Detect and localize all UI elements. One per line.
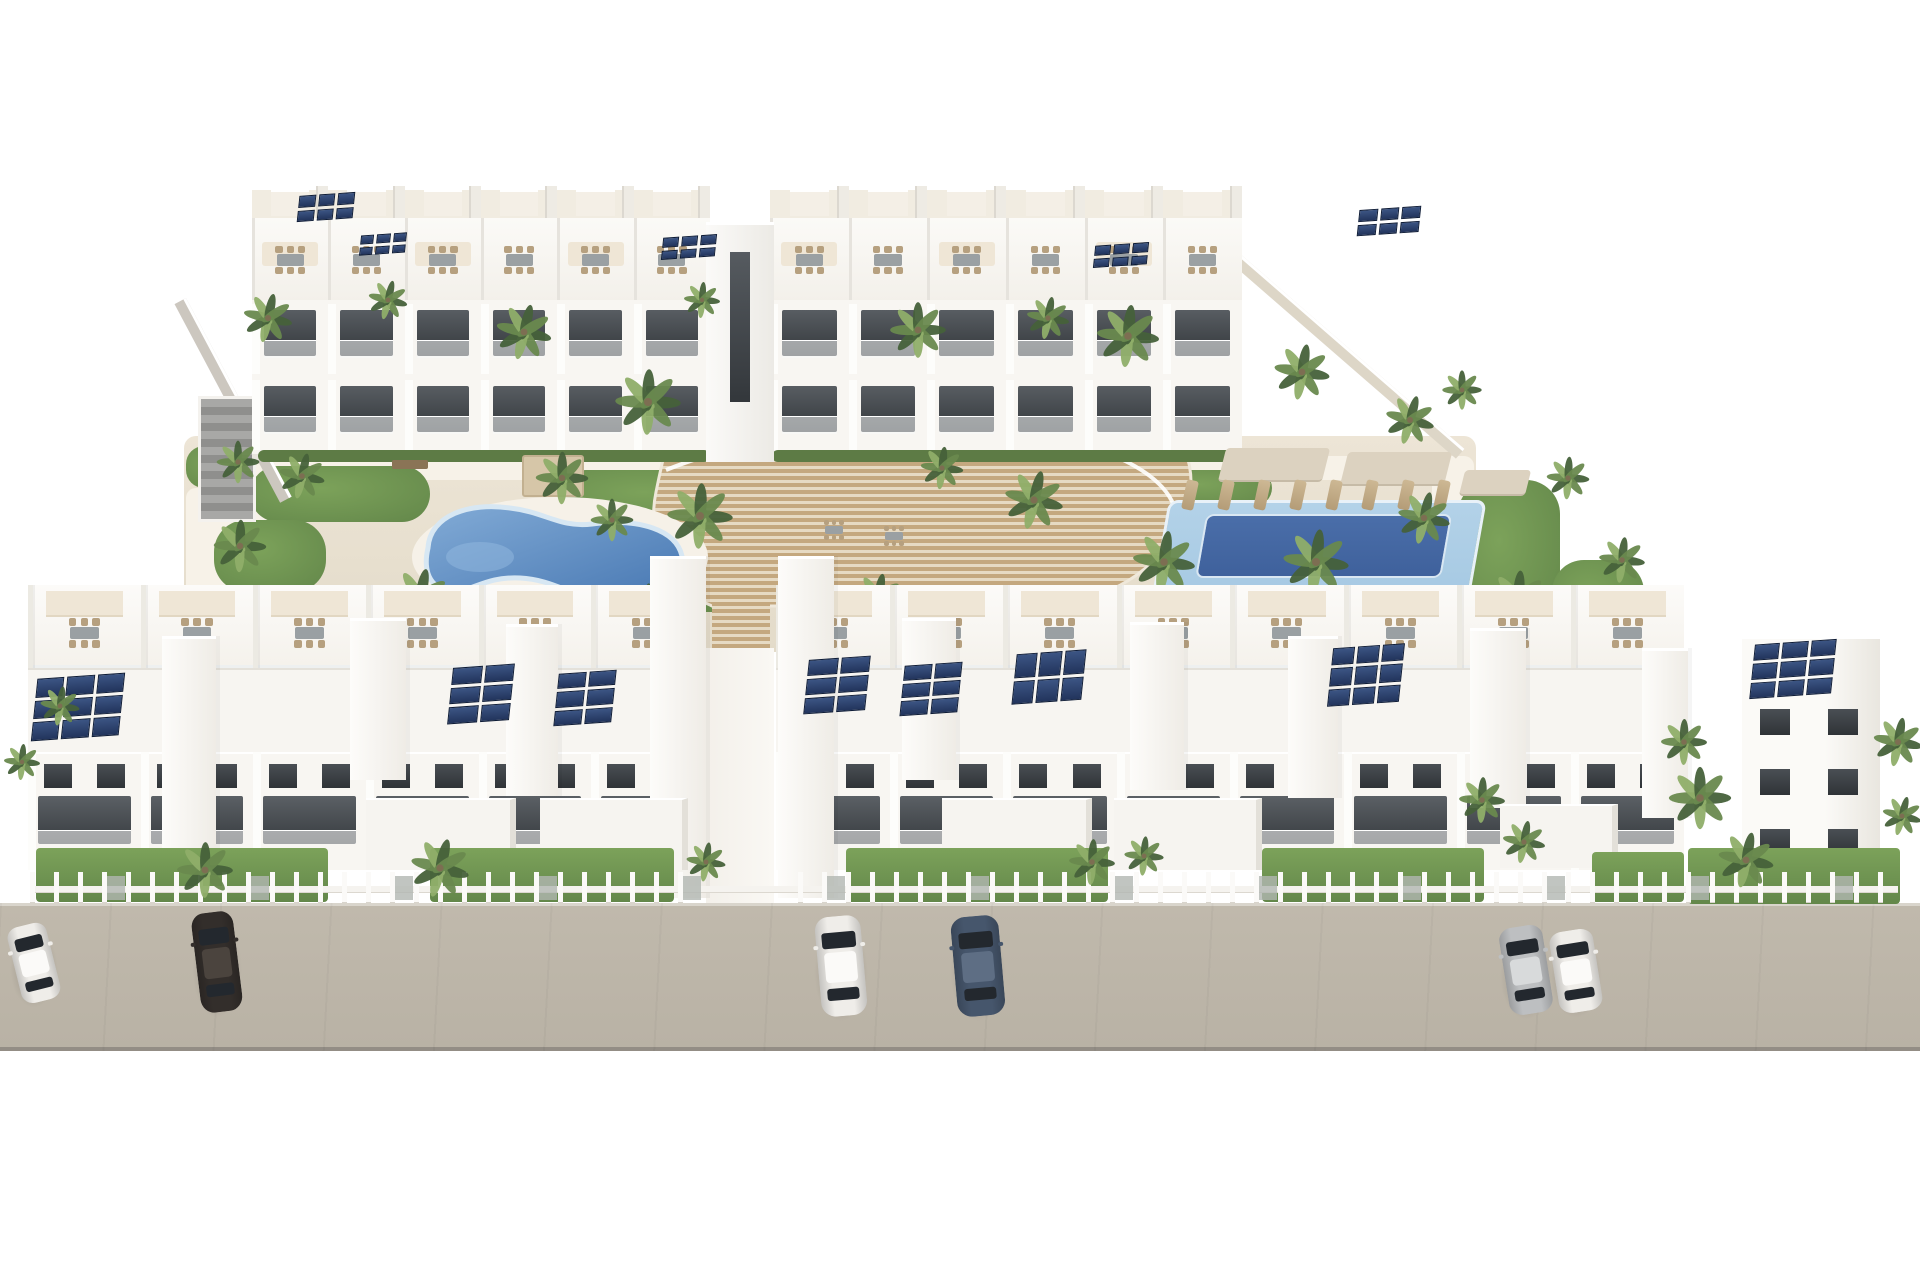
terrace-chair — [806, 246, 813, 253]
solar-panel — [584, 707, 613, 724]
fence-post — [1494, 872, 1499, 902]
solar-panel — [700, 234, 717, 245]
solar-panel — [96, 673, 125, 694]
stair-core-tower — [778, 556, 834, 898]
solar-panel — [680, 248, 697, 259]
fence-glass-panel — [1259, 876, 1277, 900]
roof-chimney — [622, 186, 634, 220]
solar-panel — [1381, 643, 1405, 662]
fence-post — [1182, 872, 1187, 902]
terrace-chair — [668, 267, 675, 274]
terrace-chair — [841, 640, 849, 648]
stair-core-tower — [162, 636, 216, 848]
terrace-dining-set — [407, 242, 479, 277]
fence-post — [366, 872, 371, 902]
palm-trunk — [235, 459, 240, 464]
fence-post — [318, 872, 323, 902]
terrace-chair — [306, 618, 314, 626]
terrace-chair — [193, 618, 201, 626]
terrace-chair — [657, 267, 664, 274]
terrace-chair — [1068, 618, 1076, 626]
architectural-rendering — [0, 0, 1920, 1280]
solar-panel-array — [1749, 639, 1837, 699]
terrace-chair — [952, 246, 959, 253]
terrace-parapet — [591, 585, 596, 668]
terrace-chair — [899, 541, 904, 546]
solar-panel — [393, 232, 407, 242]
terrace-chair — [1396, 618, 1404, 626]
terrace-chair — [899, 526, 904, 531]
terrace-divider — [328, 218, 331, 304]
terrace-dining-set — [271, 614, 348, 651]
palm-tree — [530, 446, 594, 510]
solar-panel — [1094, 245, 1111, 256]
terrace-chair — [884, 267, 891, 274]
solar-panel — [901, 682, 930, 699]
palm-trunk — [20, 760, 24, 764]
terrace-chair — [581, 267, 588, 274]
fence-post — [1518, 872, 1523, 902]
terrace-table — [506, 254, 533, 265]
solar-panel — [1113, 243, 1130, 254]
terrace-canopy — [1362, 591, 1440, 617]
solar-panel-array — [359, 232, 407, 255]
balcony-railing — [38, 830, 131, 844]
fence-post — [1038, 872, 1043, 902]
terrace-chair — [430, 640, 438, 648]
roof-box — [1104, 190, 1143, 216]
terrace-chair — [318, 618, 326, 626]
solar-panel — [451, 666, 482, 685]
palm-trunk — [1407, 417, 1413, 423]
palm-trunk — [1681, 739, 1687, 745]
facade-window — [607, 764, 635, 788]
solar-panel-array — [447, 664, 515, 725]
terrace-chair — [318, 640, 326, 648]
palm-tree — [1392, 486, 1456, 550]
fence-glass-panel — [1691, 876, 1709, 900]
solar-panel — [1400, 220, 1420, 233]
terrace-table — [1386, 627, 1415, 639]
fence-post — [870, 872, 875, 902]
palm-tree — [608, 362, 688, 442]
solar-panel — [1377, 684, 1401, 703]
terrace-chair — [1199, 246, 1206, 253]
terrace-chair — [92, 640, 100, 648]
fence-glass-panel — [107, 876, 125, 900]
facade-window — [1413, 764, 1441, 788]
terrace-chair — [817, 246, 824, 253]
solar-panel — [1782, 641, 1809, 659]
terrace-chair — [1132, 267, 1139, 274]
fence-post — [270, 872, 275, 902]
fence-post — [150, 872, 155, 902]
roof-box — [1183, 190, 1222, 216]
terrace-chair — [419, 618, 427, 626]
terrace-chair — [1044, 618, 1052, 626]
roof-chimney — [393, 186, 405, 220]
solar-panel — [557, 672, 586, 689]
terrace-chair — [1109, 267, 1116, 274]
terrace-chair — [603, 246, 610, 253]
facade-window — [1246, 764, 1274, 788]
terrace-chair — [428, 246, 435, 253]
terrace-chair — [592, 267, 599, 274]
facade-window — [1073, 764, 1101, 788]
solar-panel-array — [803, 656, 871, 715]
terrace-chair — [1408, 640, 1416, 648]
terrace-chair — [1210, 267, 1217, 274]
terrace-chair — [1635, 618, 1643, 626]
car-roof — [201, 946, 233, 979]
facade-window — [44, 764, 72, 788]
facade-pier — [1006, 380, 1014, 450]
facade-pier — [849, 380, 857, 450]
palm-trunk — [559, 475, 565, 481]
roof-chimney — [698, 186, 710, 220]
balcony-railing — [417, 340, 469, 358]
terrace-divider — [1085, 218, 1088, 304]
terrace-chair — [504, 246, 511, 253]
terrace-chair — [69, 618, 77, 626]
facade-pier — [481, 380, 489, 450]
solar-panel — [553, 709, 582, 726]
stair-core-tower — [506, 624, 558, 796]
terrace-chair — [896, 246, 903, 253]
solar-panel — [1810, 639, 1837, 657]
car-mirror — [1543, 947, 1549, 952]
solar-panel — [661, 249, 678, 260]
balcony-railing — [782, 416, 837, 434]
solar-panel-array — [1327, 643, 1405, 707]
roof-box — [1026, 190, 1065, 216]
palm-tree — [1064, 834, 1120, 890]
terrace-chair — [439, 246, 446, 253]
roof-chimney — [1151, 186, 1163, 220]
terrace-chair — [1510, 618, 1518, 626]
terrace-table — [874, 254, 901, 265]
roof-chimney — [837, 186, 849, 220]
palm-trunk — [939, 465, 944, 470]
fence-post — [1302, 872, 1307, 902]
fence-post — [510, 872, 515, 902]
facade-window — [1527, 764, 1555, 788]
terrace-divider — [634, 218, 637, 304]
facade-window — [1828, 769, 1858, 795]
terrace-chair — [1188, 267, 1195, 274]
terrace-chair — [1120, 267, 1127, 274]
facade-window — [1360, 764, 1388, 788]
terrace-chair — [1068, 640, 1076, 648]
car-mirror — [1498, 954, 1504, 959]
facade-window — [1828, 709, 1858, 735]
terrace-canopy — [497, 591, 574, 617]
terrace-chair — [287, 267, 294, 274]
entrance-tower-glass — [730, 252, 750, 402]
terrace-parapet — [1457, 585, 1462, 668]
facade-window — [846, 764, 874, 788]
terrace-chair — [603, 267, 610, 274]
terrace-chair — [884, 526, 889, 531]
terrace-canopy — [271, 591, 348, 617]
terrace-chair — [873, 246, 880, 253]
solar-panel — [1329, 667, 1353, 686]
terrace-dining-set — [852, 242, 924, 277]
fence-post — [1782, 872, 1787, 902]
fence-post — [294, 872, 299, 902]
facade-pier — [1163, 380, 1171, 450]
solar-panel-array — [1011, 649, 1086, 704]
terrace-dining-set — [1022, 614, 1099, 651]
terrace-divider — [1163, 218, 1166, 304]
roof-box — [500, 190, 538, 216]
terrace-table — [885, 532, 904, 540]
balcony-railing — [1354, 830, 1448, 844]
fence-post — [1230, 872, 1235, 902]
terrace-table — [277, 254, 304, 265]
terrace-table — [1613, 627, 1642, 639]
terrace-chair — [1522, 618, 1530, 626]
roof-box — [576, 190, 614, 216]
terrace-dining-set — [483, 242, 555, 277]
solar-panel — [1379, 664, 1403, 683]
terrace-chair — [1612, 640, 1620, 648]
fence-glass-panel — [827, 876, 845, 900]
fence-glass-panel — [539, 876, 557, 900]
solar-panel — [1777, 679, 1804, 697]
palm-tree — [916, 442, 968, 494]
terrace-canopy — [384, 591, 461, 617]
terrace-chair — [974, 267, 981, 274]
terrace-chair — [205, 618, 213, 626]
solar-panel — [336, 207, 354, 220]
terrace-chair — [419, 640, 427, 648]
pool-shallow-shelf — [446, 542, 514, 572]
terrace-table — [353, 254, 380, 265]
palm-tree — [171, 836, 239, 904]
terrace-chair — [592, 246, 599, 253]
solar-panel — [94, 694, 123, 715]
terrace-table — [408, 627, 437, 639]
terrace-table — [1032, 254, 1059, 265]
fence-post — [654, 872, 659, 902]
fence-post — [630, 872, 635, 902]
terrace-chair — [81, 640, 89, 648]
terrace-chair — [1042, 246, 1049, 253]
terrace-dining-set — [1009, 242, 1081, 277]
solar-panel — [836, 694, 867, 712]
fence-post — [918, 872, 923, 902]
roof-box — [653, 190, 691, 216]
terrace-dining-set — [1589, 614, 1666, 651]
fence-post — [1206, 872, 1211, 902]
stair-core-tower — [1288, 636, 1338, 798]
palm-tree — [1438, 366, 1486, 414]
roof-box — [868, 190, 907, 216]
terrace-chair — [873, 267, 880, 274]
balcony-railing — [1097, 416, 1152, 434]
fence-post — [1278, 872, 1283, 902]
terrace-canopy — [1475, 591, 1553, 617]
terrace-chair — [516, 246, 523, 253]
balcony-railing — [569, 340, 621, 358]
hedge-strip — [772, 450, 1242, 462]
shade-sail — [1459, 470, 1531, 496]
fence-post — [342, 872, 347, 902]
terrace-chair — [832, 520, 837, 525]
terrace-chair — [896, 267, 903, 274]
terrace-canopy — [1589, 591, 1667, 617]
palm-tree — [364, 276, 412, 324]
fence-post — [1446, 872, 1451, 902]
palm-tree — [1268, 338, 1336, 406]
palm-trunk — [1045, 315, 1050, 320]
facade-pier — [927, 380, 935, 450]
palm-tree — [1542, 452, 1594, 504]
palm-tree — [680, 278, 724, 322]
palm-trunk — [1089, 859, 1095, 865]
terrace-chair — [1199, 267, 1206, 274]
facade-window — [1760, 769, 1790, 795]
solar-panel — [1014, 653, 1038, 678]
facade-window — [97, 764, 125, 788]
terrace-chair — [527, 246, 534, 253]
fence-post — [1566, 872, 1571, 902]
terrace-chair — [679, 267, 686, 274]
solar-panel — [555, 690, 584, 707]
solar-panel — [930, 697, 959, 714]
terrace-parapet — [1571, 585, 1576, 668]
solar-panel — [360, 235, 374, 245]
terrace-chair — [1053, 267, 1060, 274]
palm-tree — [884, 296, 952, 364]
palm-tree — [586, 494, 638, 546]
solar-panel — [375, 245, 389, 255]
terrace-chair — [298, 246, 305, 253]
fence-glass-panel — [1547, 876, 1565, 900]
palm-trunk — [609, 517, 614, 522]
palm-trunk — [1160, 558, 1168, 566]
palm-trunk — [1900, 814, 1905, 819]
terrace-chair — [306, 640, 314, 648]
balcony-railing — [340, 340, 392, 358]
terrace-chair — [632, 618, 640, 626]
palm-trunk — [1460, 388, 1465, 393]
solar-panel — [1132, 242, 1149, 253]
facade-pier — [557, 304, 565, 374]
fence-post — [126, 872, 131, 902]
solar-panel — [1131, 255, 1148, 266]
terrace-chair — [1612, 618, 1620, 626]
balcony-railing — [263, 830, 356, 844]
solar-panel — [1011, 679, 1035, 704]
facade-pier — [1006, 304, 1014, 374]
palm-trunk — [386, 298, 391, 303]
terrace-chair — [963, 267, 970, 274]
palm-tree — [1380, 390, 1440, 450]
palm-tree — [36, 682, 84, 730]
terrace-dining-set — [773, 242, 845, 277]
palm-trunk — [1743, 857, 1750, 864]
terrace-chair — [892, 541, 897, 546]
solar-panel — [1380, 207, 1400, 220]
car-roof — [961, 951, 996, 984]
terrace-chair — [181, 618, 189, 626]
terrace-chair — [298, 267, 305, 274]
terrace-chair — [1031, 246, 1038, 253]
terrace-chair — [294, 618, 302, 626]
facade-pier — [481, 304, 489, 374]
solar-panel — [1780, 660, 1807, 678]
palm-trunk — [700, 298, 704, 302]
terrace-parapet — [1230, 585, 1235, 668]
solar-panel — [316, 208, 334, 221]
roof-chimney — [545, 186, 557, 220]
solar-panel — [934, 662, 963, 679]
solar-panel — [1806, 677, 1833, 695]
roof-chimney — [1073, 186, 1085, 220]
terrace-chair — [1044, 640, 1052, 648]
solar-panel — [337, 192, 355, 205]
solar-panel — [1751, 662, 1778, 680]
palm-tree — [998, 464, 1070, 536]
terrace-chair — [1623, 640, 1631, 648]
palm-trunk — [644, 398, 652, 406]
balcony-railing — [1175, 416, 1230, 434]
terrace-chair — [581, 246, 588, 253]
terrace-parapet — [253, 585, 258, 668]
terrace-chair — [963, 246, 970, 253]
palm-trunk — [1479, 797, 1485, 803]
facade-pier — [849, 304, 857, 374]
terrace-chair — [450, 246, 457, 253]
balcony-railing — [1018, 416, 1073, 434]
solar-panel — [1331, 647, 1355, 666]
terrace-chair — [832, 535, 837, 540]
facade-pier — [328, 304, 336, 374]
solar-panel — [1378, 222, 1398, 235]
facade-window — [1019, 764, 1047, 788]
palm-trunk — [915, 327, 922, 334]
stair-core-tower — [350, 618, 406, 780]
facade-window — [269, 764, 297, 788]
facade-pier — [405, 380, 413, 450]
terrace-divider — [481, 218, 484, 304]
fence-glass-panel — [1835, 876, 1853, 900]
car-roof — [1509, 955, 1543, 986]
fence-post — [1014, 872, 1019, 902]
solar-panel — [1808, 658, 1835, 676]
terrace-chair — [294, 640, 302, 648]
facade-pier — [557, 380, 565, 450]
solar-panel — [1358, 209, 1378, 222]
solar-panel — [1112, 256, 1129, 267]
terrace-canopy — [46, 591, 123, 617]
facade-window — [1587, 764, 1615, 788]
terrace-divider — [927, 218, 930, 304]
terrace-chair — [527, 267, 534, 274]
terrace-chair — [430, 618, 438, 626]
terrace-chair — [1056, 640, 1064, 648]
facade-window — [1760, 709, 1790, 735]
terrace-dining-set — [869, 524, 919, 548]
fence-post — [1614, 872, 1619, 902]
terrace-chair — [1271, 640, 1279, 648]
palm-trunk — [299, 473, 305, 479]
terrace-chair — [795, 246, 802, 253]
balcony-railing — [417, 416, 469, 434]
terrace-chair — [69, 640, 77, 648]
